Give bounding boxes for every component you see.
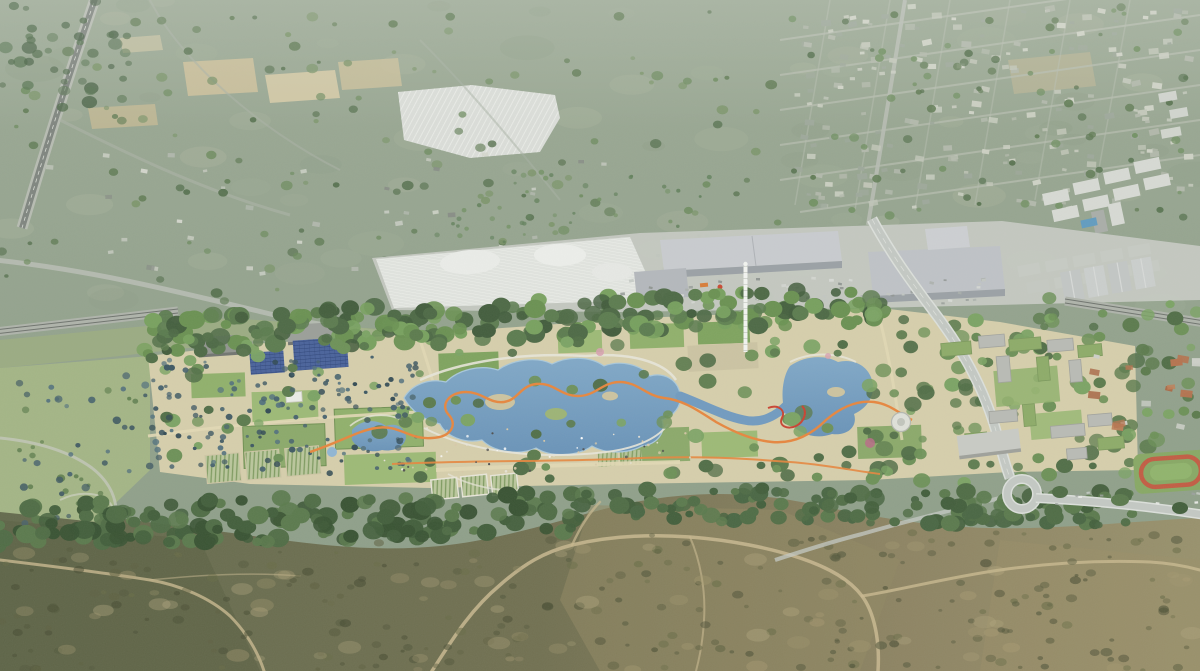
right-trees-item	[1118, 467, 1131, 478]
palm-grove-item	[346, 388, 350, 392]
park-trees-item	[772, 465, 781, 473]
palm-grove-item	[224, 424, 230, 429]
orchard-west-item	[490, 236, 494, 240]
palms-west-item	[82, 484, 90, 492]
scrub-light-item	[574, 544, 591, 553]
top-trees-item	[558, 226, 569, 235]
scrub-blobs-item	[1089, 538, 1093, 541]
suburb-houses-item	[807, 154, 816, 159]
scrub-light-item	[338, 641, 361, 654]
plaza-people-item	[553, 455, 555, 457]
scrub-blobs-item	[89, 666, 95, 670]
top-trees-item	[51, 239, 59, 245]
suburb-trees-item	[939, 166, 946, 172]
suburb-trees-item	[791, 168, 797, 173]
plaza-people-item	[576, 447, 578, 449]
palm-grove-item	[250, 444, 254, 447]
suburb-trees-item	[1089, 132, 1096, 138]
scrub-blobs-item	[79, 662, 84, 665]
rural-buildings-item	[121, 238, 127, 242]
suburb-houses-item	[1003, 161, 1008, 164]
scrub-blobs-item	[129, 593, 135, 597]
palm-grove-item	[211, 460, 216, 464]
palms-west-item	[122, 372, 130, 379]
top-trees-item	[751, 148, 761, 156]
scrub-blobs-item	[244, 630, 253, 636]
scrub-light-item	[390, 573, 409, 583]
right-trees-item	[1056, 459, 1073, 473]
right-trees-item	[868, 468, 883, 481]
scrub-blobs-item	[1018, 666, 1023, 669]
plaza-people-item	[425, 468, 427, 470]
park-trees-item	[545, 474, 555, 482]
top-trees-item	[275, 288, 279, 292]
plaza-people-item	[543, 440, 545, 442]
right-trees-item	[875, 441, 893, 456]
park-trees-item	[610, 339, 624, 351]
orchard-west-item	[539, 170, 545, 175]
scrub-blobs-item	[340, 619, 351, 627]
orchard-west-item	[451, 222, 455, 225]
scrub-blobs-item	[796, 664, 806, 671]
orchard-west-item	[457, 233, 462, 238]
scrub-blobs-item	[778, 590, 782, 593]
park-trees-item	[749, 443, 759, 451]
palm-grove-item	[247, 409, 252, 413]
park-trees-item	[273, 454, 283, 463]
palm-grove-item	[395, 413, 401, 419]
palm-grove-item	[342, 452, 346, 456]
park-trees-item	[663, 468, 677, 479]
mall-cars-item	[977, 286, 981, 288]
suburb-trees-item	[861, 144, 868, 150]
scrub-blobs-item	[223, 597, 230, 602]
scrub-blobs-item	[645, 580, 650, 584]
top-trees-item	[139, 195, 147, 201]
fringe-east-item	[666, 512, 682, 525]
scrub-blobs-item	[457, 650, 464, 655]
park-canopy-item	[170, 344, 185, 357]
palm-grove-item	[149, 425, 156, 431]
scrub-blobs-item	[340, 662, 345, 666]
scrub-light-item	[897, 637, 911, 645]
park-canopy-item	[168, 328, 179, 337]
suburb-houses-item	[1087, 154, 1094, 159]
scrub-blobs-item	[310, 582, 320, 589]
palm-grove-item	[394, 393, 398, 397]
top-trees-item	[591, 138, 599, 144]
plaza-people-item	[496, 450, 498, 452]
right-trees-item	[914, 449, 927, 460]
suburb-trees-item	[885, 211, 895, 219]
scrub-blobs-item	[896, 598, 902, 602]
orchard-west-item	[676, 189, 680, 193]
palm-grove-item	[292, 359, 298, 364]
orchard-west-item	[457, 217, 462, 222]
palm-grove-item	[289, 359, 293, 363]
scrub-blobs-item	[3, 561, 10, 566]
fringe-west-item	[538, 503, 557, 519]
palms-west-item	[127, 469, 132, 473]
palm-grove-item	[353, 382, 358, 386]
mall-cars-item	[710, 286, 714, 288]
park-trees-item	[968, 459, 980, 469]
park-trees-item	[699, 374, 717, 389]
scrub-blobs-item	[182, 587, 192, 594]
field-mottle-item	[180, 146, 227, 167]
palm-grove-item	[193, 447, 197, 450]
park-trees-item	[152, 335, 167, 348]
park-trees-item	[834, 350, 842, 357]
palm-grove-item	[260, 466, 266, 471]
fringe-west-item	[135, 530, 152, 544]
scrub-blobs-item	[606, 578, 613, 583]
scrub-light-item	[567, 641, 576, 646]
palm-grove-item	[361, 446, 366, 451]
palm-grove-item	[164, 385, 168, 388]
palm-grove-item	[326, 379, 330, 382]
village-houses-item	[1180, 390, 1193, 398]
fringe-west-item	[387, 530, 401, 542]
scrub-blobs-item	[839, 628, 847, 634]
fringe-east-item	[575, 514, 585, 522]
palm-grove-item	[261, 396, 267, 401]
park-canopy-item	[627, 293, 646, 309]
park-canopy-item	[319, 303, 337, 318]
plaza-people-item	[643, 446, 645, 448]
scrub-blobs-item	[788, 539, 800, 547]
park-trees-item	[202, 332, 213, 342]
mall-cars-item	[902, 294, 905, 296]
palms-west-item	[20, 483, 28, 490]
scrub-blobs-item	[11, 584, 20, 590]
scrub-light-item	[744, 553, 767, 565]
park-trees-item	[657, 416, 673, 429]
palm-grove-item	[187, 435, 191, 439]
palm-grove-item	[303, 424, 307, 428]
palm-grove-item	[276, 403, 282, 408]
scrub-blobs-item	[1075, 574, 1079, 577]
scrub-blobs-item	[379, 654, 388, 660]
scrub-light-item	[71, 553, 89, 563]
right-trees-item	[1040, 323, 1048, 330]
plaza-people-item	[475, 461, 477, 463]
palm-grove-item	[385, 383, 390, 387]
park-trees-item	[430, 337, 447, 351]
scrub-blobs-item	[89, 590, 100, 597]
fringe-west-item	[363, 521, 384, 539]
plaza-people-item	[466, 444, 468, 446]
scrub-light-item	[16, 606, 34, 616]
scrub-blobs-item	[207, 574, 219, 582]
fringe-west-item	[445, 509, 460, 522]
scrub-light-item	[515, 657, 524, 662]
scrub-light-item	[150, 590, 160, 595]
plaza-people-item	[488, 463, 490, 465]
fringe-west-item	[442, 527, 452, 536]
scrub-blobs-item	[625, 644, 629, 647]
scrub-blobs-item	[907, 529, 917, 536]
orchard-west-item	[514, 182, 517, 185]
orchard-west-item	[668, 220, 672, 224]
scrub-blobs-item	[315, 667, 320, 670]
palms-west-item	[143, 394, 147, 398]
top-trees-item	[264, 264, 275, 273]
park-canopy-item	[639, 323, 655, 337]
park-trees-item	[426, 417, 438, 427]
mall-cars-item	[620, 292, 625, 295]
rural-buildings-item	[448, 212, 456, 217]
suburb-trees-item	[1135, 208, 1139, 212]
scrub-light-item	[257, 578, 276, 588]
fringe-east-item	[778, 488, 789, 497]
suburb-trees-item	[1009, 160, 1016, 166]
palm-grove-item	[205, 435, 210, 439]
palm-grove-item	[237, 379, 241, 383]
scrub-blobs-item	[744, 605, 749, 608]
suburb-trees-item	[848, 207, 855, 213]
fringe-west-item	[377, 509, 395, 524]
orchard-west-item	[523, 233, 526, 236]
top-trees-item	[235, 158, 242, 164]
right-trees-item	[904, 397, 921, 412]
suburb-houses-item	[1188, 184, 1193, 187]
fringe-west-item	[164, 499, 178, 511]
park-canopy-item	[784, 291, 800, 304]
right-trees-item	[919, 436, 927, 443]
mall-cars-item	[941, 302, 944, 304]
suburb-houses-item	[943, 145, 952, 151]
scrub-blobs-item	[595, 637, 606, 645]
suburb-trees-item	[849, 133, 859, 141]
palm-grove-item	[388, 466, 392, 470]
palm-grove-item	[340, 459, 344, 462]
palm-grove-item	[335, 374, 342, 380]
mall-cars-item	[781, 284, 786, 287]
palm-grove-item	[167, 395, 172, 400]
fringe-west-item	[237, 521, 251, 533]
orchard-west-item	[549, 173, 553, 177]
palm-grove-item	[164, 364, 171, 370]
scrub-blobs-item	[1148, 531, 1159, 539]
park-canopy-item	[841, 316, 857, 330]
plaza-people-item	[446, 430, 448, 432]
right-trees-item	[881, 466, 890, 474]
scrub-blobs-item	[109, 593, 120, 601]
scrub-light-item	[491, 605, 505, 613]
top-trees-item	[183, 189, 190, 195]
scrub-blobs-item	[444, 658, 454, 665]
top-trees-item	[176, 184, 185, 191]
park-trees-item	[360, 342, 370, 350]
palm-grove-item	[405, 457, 410, 461]
top-trees-item	[488, 140, 497, 147]
park-trees-item	[1032, 453, 1044, 463]
plaza-people-item	[412, 467, 414, 469]
palm-grove-item	[170, 429, 174, 432]
scrub-blobs-item	[175, 553, 182, 558]
top-trees-item	[521, 194, 526, 198]
palm-grove-item	[265, 458, 271, 463]
scrub-blobs-item	[329, 628, 341, 636]
fringe-west-item	[35, 526, 51, 539]
scrub-blobs-item	[500, 595, 506, 599]
palm-grove-item	[317, 374, 320, 377]
palm-grove-item	[316, 360, 320, 363]
park-canopy-item	[194, 346, 208, 358]
suburb-trees-item	[872, 175, 881, 183]
palm-grove-item	[367, 407, 372, 412]
suburb-houses-item	[856, 193, 863, 197]
rural-buildings-item	[46, 165, 54, 170]
scrub-blobs-item	[860, 617, 864, 620]
top-trees-item	[744, 178, 750, 183]
fringe-west-item	[505, 515, 524, 531]
scrub-light-item	[474, 576, 494, 587]
observation-tower	[743, 262, 747, 352]
park-trees-item	[237, 414, 251, 426]
right-trees-item	[1013, 463, 1023, 471]
palm-grove-item	[398, 400, 404, 405]
palm-grove-item	[156, 455, 162, 461]
suburb-trees-item	[831, 134, 839, 140]
scrub-light-item	[421, 577, 440, 587]
park-canopy-item	[183, 334, 195, 344]
fringe-east-item	[1073, 513, 1087, 525]
scrub-light-item	[681, 643, 694, 650]
palm-grove-item	[246, 435, 249, 438]
scrub-blobs-item	[835, 619, 846, 627]
suburb-houses-item	[986, 182, 993, 186]
park-trees-item	[688, 429, 705, 443]
road-cars-item	[1100, 495, 1103, 497]
scrub-blobs-item	[993, 531, 1000, 536]
top-trees-item	[333, 182, 340, 187]
fringe-east-item	[694, 506, 702, 513]
suburb-houses-item	[1147, 149, 1153, 153]
suburb-trees-item	[1096, 167, 1103, 173]
field-mottle-item	[657, 211, 709, 234]
orchard-west-item	[490, 216, 495, 221]
top-trees-item	[299, 228, 304, 232]
fringe-west-item	[106, 506, 127, 524]
top-trees-item	[28, 241, 33, 245]
palm-grove-item	[203, 364, 209, 369]
fringe-east-item	[941, 515, 960, 531]
palm-grove-item	[166, 415, 173, 421]
palm-grove-item	[317, 456, 321, 459]
suburb-trees-item	[1171, 136, 1180, 144]
fringe-east-item	[920, 515, 939, 531]
fringe-east-item	[827, 490, 836, 498]
scrub-blobs-item	[24, 624, 31, 629]
scrub-blobs-item	[1002, 628, 1010, 634]
orchard-west-item	[534, 198, 539, 203]
mall-cars-item	[811, 277, 816, 280]
suburb-houses-item	[885, 190, 893, 195]
palm-grove-item	[183, 367, 189, 372]
top-trees-item	[218, 189, 228, 197]
scrub-blobs-item	[903, 662, 911, 668]
park-canopy-item	[609, 295, 627, 310]
park-trees-item	[676, 357, 693, 371]
fringe-west-item	[128, 517, 141, 528]
scrub-light-item	[849, 640, 871, 652]
fringe-east-item	[811, 494, 821, 503]
park-trees-item	[890, 432, 899, 440]
scrub-light-item	[973, 616, 996, 629]
scrub-blobs-item	[403, 644, 413, 651]
fringe-east-item	[991, 509, 1004, 520]
scrub-blobs-item	[347, 584, 354, 589]
plaza-people-item	[689, 456, 691, 458]
running-track	[1133, 449, 1200, 494]
palm-grove-item	[312, 378, 317, 382]
park-trees-item	[451, 396, 461, 405]
right-trees-item	[867, 310, 880, 321]
scrub-blobs-item	[852, 600, 857, 604]
scrub-blobs-item	[951, 640, 956, 643]
scrub-light-item	[149, 598, 171, 610]
top-trees-item	[260, 231, 268, 238]
village-houses-item	[1192, 358, 1200, 363]
fringe-east-item	[774, 498, 789, 511]
palm-grove-item	[152, 439, 159, 445]
aerial-masterplan-render	[0, 0, 1200, 671]
scrub-blobs-item	[328, 601, 335, 606]
fringe-west-item	[341, 497, 360, 513]
scrub-blobs-item	[443, 644, 452, 650]
orchard-west-item	[503, 241, 506, 244]
palms-west-item	[59, 491, 64, 496]
fringe-east-item	[644, 496, 660, 509]
park-trees-item	[1089, 463, 1097, 470]
top-trees-item	[552, 230, 558, 235]
orchard-west-item	[497, 206, 501, 210]
top-trees-item	[650, 139, 661, 148]
rural-buildings-item	[245, 205, 253, 210]
fringe-west-item	[486, 493, 498, 504]
scrub-blobs-item	[1036, 611, 1042, 615]
fringe-west-item	[415, 498, 436, 516]
suburb-houses-item	[863, 182, 872, 188]
scrub-light-item	[787, 636, 810, 649]
scrub-blobs-item	[302, 568, 314, 576]
suburb-houses-item	[948, 155, 958, 161]
scrub-blobs-item	[542, 602, 553, 610]
scrub-blobs-item	[1083, 578, 1088, 581]
palm-grove-item	[406, 363, 412, 368]
fringe-west-item	[247, 506, 268, 524]
scrub-blobs-item	[29, 569, 33, 572]
palms-west-item	[64, 404, 69, 408]
scrub-light-item	[987, 566, 1004, 576]
scrub-blobs-item	[1146, 626, 1152, 630]
fringe-west-item	[540, 491, 556, 505]
orchard-west-item	[464, 227, 469, 231]
scrub-blobs-item	[334, 551, 338, 554]
suburb-houses-item	[815, 192, 821, 196]
palm-grove-item	[265, 408, 271, 413]
park-trees-item	[167, 449, 183, 463]
fringe-west-item	[477, 524, 497, 541]
rural-buildings-item	[221, 186, 225, 189]
suburb-trees-item	[917, 208, 922, 212]
scrub-blobs-item	[651, 647, 658, 652]
fringe-east-item	[903, 509, 913, 518]
scrub-blobs-item	[278, 551, 282, 554]
scrub-light-item	[250, 599, 274, 612]
